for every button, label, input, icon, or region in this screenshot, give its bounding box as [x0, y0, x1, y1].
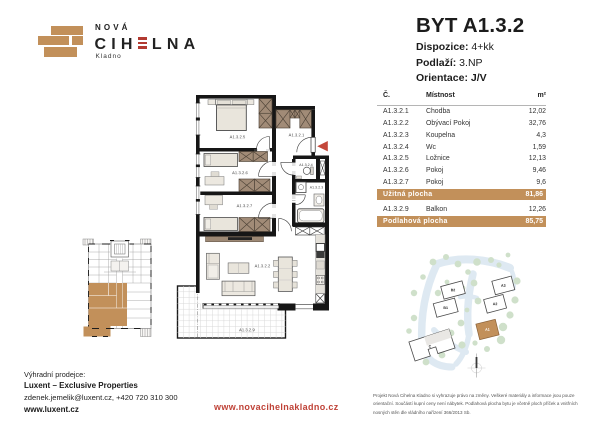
svg-text:A1.3.2.5: A1.3.2.5 [230, 134, 246, 139]
svg-text:A1.3.2.7: A1.3.2.7 [237, 203, 253, 208]
svg-text:B1: B1 [443, 306, 448, 310]
svg-text:A1.3.2.9: A1.3.2.9 [239, 327, 255, 332]
svg-text:A1.3.2.1: A1.3.2.1 [289, 132, 305, 137]
svg-text:A1.3.2.4: A1.3.2.4 [299, 163, 312, 167]
svg-text:A3: A3 [501, 284, 506, 288]
svg-text:B2: B2 [451, 288, 456, 292]
svg-text:A1.3.2.6: A1.3.2.6 [232, 170, 248, 175]
svg-text:A1.3.2.2: A1.3.2.2 [255, 263, 271, 268]
svg-text:A1: A1 [485, 328, 490, 332]
svg-text:A2: A2 [493, 302, 498, 306]
svg-text:A1.3.2.3: A1.3.2.3 [310, 186, 323, 190]
svg-text:C: C [429, 344, 432, 348]
